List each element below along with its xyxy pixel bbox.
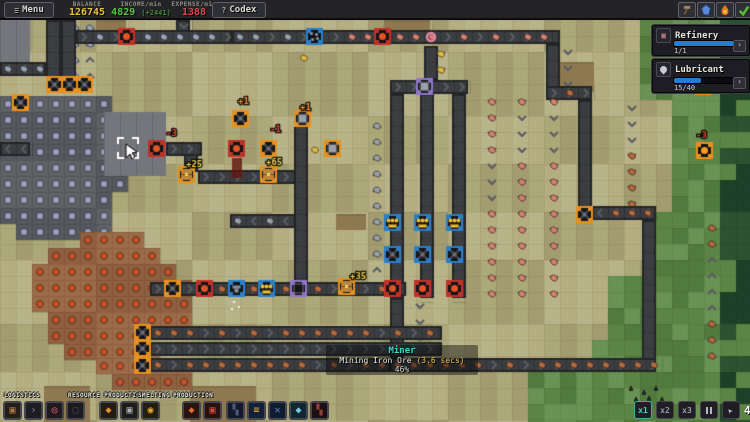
slot-tunnel[interactable]: ◎ (45, 401, 64, 420)
slot-blast-furnace[interactable]: ▣ (203, 401, 222, 420)
speed-controls: x1x2x3➤4➤ (634, 401, 750, 419)
crystal-icon[interactable] (697, 2, 715, 18)
slot-forge[interactable]: ▚ (310, 401, 329, 420)
droplet-icon (656, 62, 671, 77)
top-bar: ≡ Menu BALANCE 126745 INCOME/min 4829 (+… (0, 0, 750, 20)
factory-icon: ✕ (274, 406, 280, 416)
conveyor-icon: ▣ (9, 406, 15, 416)
lubricant-title: Lubricant (675, 65, 724, 75)
question-icon: ? (222, 6, 227, 15)
game-window: Miner Mining Iron Ore (3.6 secs) 46% ≡ M… (0, 0, 750, 422)
pause-button[interactable] (700, 401, 718, 419)
pump-icon: ◉ (147, 406, 153, 416)
category-label-resource-production: RESOURCE PRODUCTION (68, 392, 144, 399)
refinery-panel: ▣ Refinery 1/1 › (652, 25, 750, 56)
slot-splitter[interactable]: ▢ (66, 401, 85, 420)
pause-icon (706, 407, 708, 414)
flame-icon[interactable] (716, 2, 734, 18)
quarry-icon: ▣ (126, 406, 132, 416)
assembler-icon: ▚ (232, 406, 238, 416)
slot-quarry[interactable]: ▣ (120, 401, 139, 420)
gem-lab-icon: ◆ (295, 406, 301, 416)
refinery-title: Refinery (675, 31, 718, 41)
slot-assembler[interactable]: ▚ (226, 401, 245, 420)
lubricant-next-button[interactable]: › (733, 77, 746, 89)
speed-x3-button[interactable]: x3 (678, 401, 696, 419)
refinery-icon: ▣ (656, 28, 671, 43)
arrow-icon: › (30, 406, 36, 416)
tooltip-progress: 46% (326, 365, 478, 374)
category-label-logistics: LOGISTICS (4, 392, 40, 399)
mint-icon: ≡ (253, 406, 259, 416)
slot-furnace[interactable]: ◆ (182, 401, 201, 420)
hover-tooltip: Miner Mining Iron Ore (3.6 secs) 46% (326, 345, 478, 375)
category-label-smelting: SMELTING (138, 392, 170, 399)
menu-label: Menu (22, 5, 44, 15)
refinery-next-button[interactable]: › (733, 40, 746, 52)
miner-icon: ◆ (105, 406, 111, 416)
slot-gem-lab[interactable]: ◆ (289, 401, 308, 420)
lubricant-panel: Lubricant 15/40 › (652, 59, 750, 93)
codex-button[interactable]: ? Codex (212, 2, 266, 18)
hammer-icon[interactable] (678, 2, 696, 18)
blast-furnace-icon: ▣ (209, 406, 215, 416)
category-label-production: PRODUCTION (173, 392, 213, 399)
speed-x1-button[interactable]: x1 (634, 401, 652, 419)
check-icon[interactable] (735, 2, 750, 18)
splitter-icon: ▢ (72, 406, 78, 416)
hamburger-icon: ≡ (14, 6, 19, 15)
refinery-count: 1/1 (674, 47, 687, 55)
lubricant-count: 15/40 (674, 84, 695, 92)
slot-factory[interactable]: ✕ (268, 401, 287, 420)
furnace-icon: ◆ (188, 406, 194, 416)
tunnel-icon: ◎ (51, 406, 57, 416)
tooltip-action: Mining Iron Ore (3.6 secs) (326, 356, 478, 365)
tooltip-time: (3.6 secs) (416, 356, 464, 365)
slot-conveyor[interactable]: ▣ (3, 401, 22, 420)
slot-pump[interactable]: ◉ (141, 401, 160, 420)
selection-count: 4 (744, 404, 750, 417)
cursor-icon: ➤ (726, 405, 737, 416)
tooltip-title: Miner (326, 346, 478, 356)
slot-arrow[interactable]: › (24, 401, 43, 420)
select-tool-button[interactable]: ➤ (722, 401, 740, 419)
forge-icon: ▚ (316, 406, 322, 416)
speed-x2-button[interactable]: x2 (656, 401, 674, 419)
slot-mint[interactable]: ≡ (247, 401, 266, 420)
menu-button[interactable]: ≡ Menu (4, 2, 54, 18)
codex-label: Codex (229, 5, 256, 15)
slot-miner[interactable]: ◆ (99, 401, 118, 420)
